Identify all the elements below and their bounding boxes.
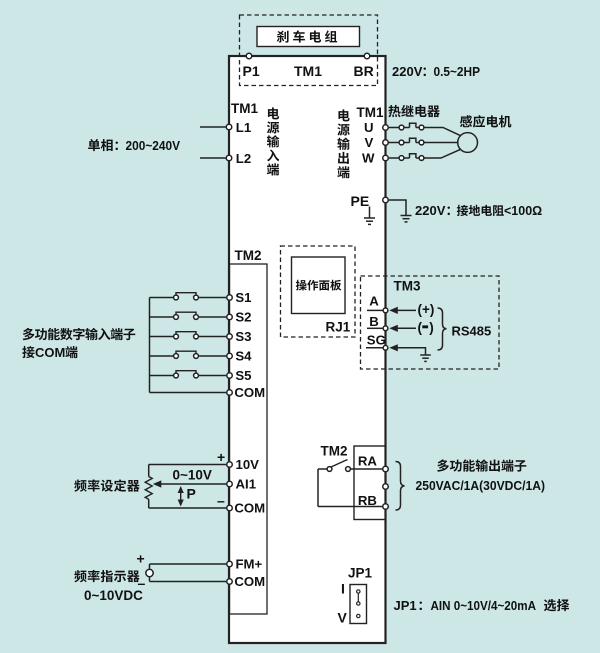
svg-text:RB: RB — [358, 493, 377, 508]
svg-text:COM: COM — [234, 574, 265, 589]
svg-text:COM: COM — [234, 500, 265, 515]
svg-text:S5: S5 — [235, 368, 251, 383]
svg-text:COM: COM — [35, 345, 65, 360]
svg-text:V: V — [338, 610, 348, 626]
svg-text:RA: RA — [358, 453, 378, 468]
svg-text:(+): (+) — [418, 302, 435, 317]
svg-text:TM2: TM2 — [321, 444, 348, 459]
svg-text:W: W — [362, 150, 375, 165]
svg-text:JP1: JP1 — [348, 566, 373, 581]
svg-text:0~10V: 0~10V — [173, 468, 212, 483]
svg-text:220V: 220V — [392, 64, 423, 79]
svg-text:BR: BR — [354, 63, 374, 79]
svg-text:PE: PE — [351, 193, 370, 209]
svg-text:AI1: AI1 — [236, 476, 257, 491]
svg-text:200~240V: 200~240V — [126, 138, 181, 153]
svg-text:I: I — [341, 581, 345, 597]
svg-text:TM1: TM1 — [357, 105, 384, 120]
svg-text:S4: S4 — [235, 348, 252, 363]
svg-text:L2: L2 — [236, 151, 251, 166]
svg-text:P: P — [187, 486, 196, 502]
svg-text:A: A — [369, 293, 379, 308]
svg-text:FM+: FM+ — [236, 556, 263, 571]
svg-text:S2: S2 — [235, 309, 251, 324]
svg-text:+: + — [217, 449, 225, 465]
svg-text:JP1: JP1 — [394, 598, 417, 613]
svg-text:TM3: TM3 — [394, 279, 421, 294]
svg-text:+: + — [137, 551, 145, 567]
svg-text:–: – — [217, 493, 225, 509]
svg-text:0~10VDC: 0~10VDC — [84, 588, 143, 603]
svg-text:RJ1: RJ1 — [326, 320, 351, 335]
svg-text:P1: P1 — [243, 63, 260, 79]
svg-text:220V: 220V — [415, 203, 446, 218]
svg-text:250VAC/1A(30VDC/1A): 250VAC/1A(30VDC/1A) — [416, 478, 546, 493]
svg-text:S1: S1 — [235, 290, 251, 305]
svg-text:<100Ω: <100Ω — [504, 204, 542, 218]
svg-text:TM2: TM2 — [235, 248, 262, 263]
svg-text:U: U — [364, 120, 374, 135]
svg-text:V: V — [365, 135, 374, 150]
svg-text:L1: L1 — [236, 120, 251, 135]
svg-text:0.5~2HP: 0.5~2HP — [434, 64, 481, 79]
svg-text:): ) — [429, 320, 434, 335]
svg-text:B: B — [369, 314, 379, 329]
svg-text:COM: COM — [234, 385, 265, 400]
svg-text:(: ( — [418, 320, 423, 335]
svg-text:RS485: RS485 — [452, 324, 492, 339]
svg-text:TM1: TM1 — [231, 101, 258, 116]
svg-text:SG: SG — [367, 333, 386, 348]
svg-text:AIN 0~10V/4~20mA: AIN 0~10V/4~20mA — [431, 598, 537, 613]
svg-text:TM1: TM1 — [294, 63, 322, 79]
svg-text:10V: 10V — [236, 457, 260, 472]
svg-text:S3: S3 — [235, 329, 251, 344]
